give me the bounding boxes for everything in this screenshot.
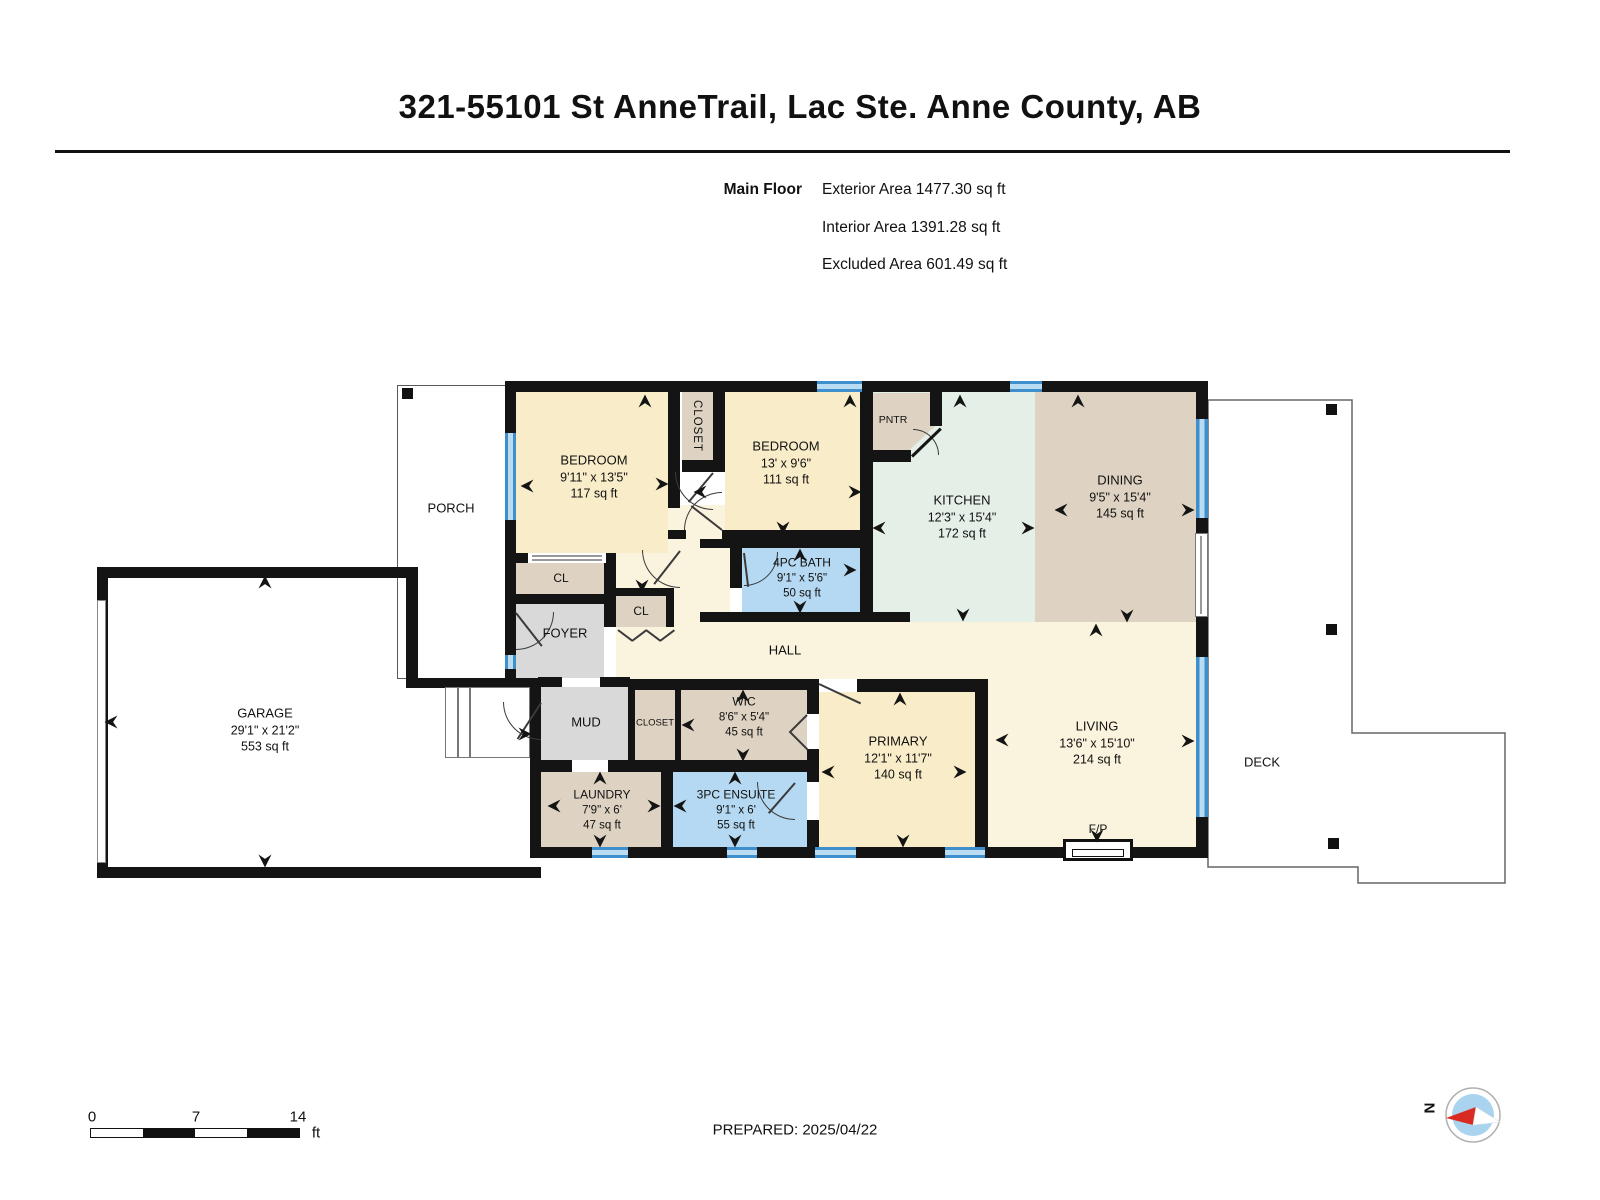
room-label-ensuite: 3PC ENSUITE 9'1" x 6' 55 sq ft <box>697 787 776 832</box>
room-area: 55 sq ft <box>697 818 776 833</box>
window <box>815 847 856 858</box>
scale-unit: ft <box>312 1125 320 1142</box>
room-area: 47 sq ft <box>573 818 630 833</box>
label-foyer: FOYER <box>543 626 588 641</box>
direction-arrow-icon <box>259 855 272 868</box>
garage-door <box>97 600 106 863</box>
label-hall: HALL <box>769 643 802 658</box>
closet-slider-track <box>532 559 602 561</box>
wall-segment <box>600 677 630 687</box>
wall-segment <box>730 538 742 588</box>
scale-start: 0 <box>88 1109 96 1126</box>
compass-icon <box>1438 1081 1508 1151</box>
wall-segment <box>608 760 807 772</box>
room-label-garage: GARAGE 29'1" x 21'2" 553 sq ft <box>231 705 300 754</box>
room-dims: 12'1" x 11'7" <box>864 750 932 766</box>
wall-segment <box>857 679 988 692</box>
room-area: 214 sq ft <box>1059 751 1135 767</box>
wall-segment <box>406 567 418 688</box>
room-area: 117 sq ft <box>560 485 628 501</box>
room-label-bedroom1: BEDROOM 9'11" x 13'5" 117 sq ft <box>560 452 628 501</box>
label-porch: PORCH <box>428 501 475 516</box>
label-cl-hall: CL <box>633 604 648 618</box>
post-marker <box>402 388 413 399</box>
scale-mid: 7 <box>192 1109 200 1126</box>
room-label-bedroom2: BEDROOM 13' x 9'6" 111 sq ft <box>752 438 819 487</box>
page-title: 321-55101 St AnneTrail, Lac Ste. Anne Co… <box>0 88 1600 126</box>
label-closet-mud: CLOSET <box>636 718 674 729</box>
prepared-date: PREPARED: 2025/04/22 <box>713 1122 878 1139</box>
room-label-laundry: LAUNDRY 7'9" x 6' 47 sq ft <box>573 787 630 832</box>
label-closet-vertical: CLOSET <box>691 400 703 452</box>
room-area: 140 sq ft <box>864 766 932 782</box>
room-dims: 8'6" x 5'4" <box>719 710 769 725</box>
wall-segment <box>675 680 681 765</box>
window <box>505 433 516 520</box>
wall-segment <box>873 450 911 462</box>
wall-segment <box>628 679 819 690</box>
room-name: WIC <box>719 694 769 710</box>
room-name: GARAGE <box>231 705 300 722</box>
scale-bar <box>90 1128 300 1138</box>
wall-segment <box>505 594 616 604</box>
wall-segment <box>975 679 988 858</box>
window <box>1196 657 1208 817</box>
title-rule <box>55 150 1510 153</box>
room-dims: 9'5" x 15'4" <box>1089 489 1151 505</box>
room-label-kitchen: KITCHEN 12'3" x 15'4" 172 sq ft <box>928 492 997 541</box>
stair-tread <box>457 687 459 758</box>
deck-outline <box>1200 394 1512 892</box>
room-area: 172 sq ft <box>928 525 997 541</box>
wall-segment <box>505 381 516 688</box>
wall-segment <box>713 381 725 472</box>
wall-segment <box>860 381 873 538</box>
wall-segment <box>668 530 686 539</box>
wall-segment <box>666 588 674 627</box>
fireplace-hearth <box>1072 849 1124 857</box>
room-area: 111 sq ft <box>752 471 819 487</box>
room-dims: 13'6" x 15'10" <box>1059 735 1135 751</box>
wall-segment <box>97 867 541 878</box>
wall-segment <box>700 539 873 548</box>
label-fireplace: F/P <box>1089 822 1108 836</box>
stair-tread <box>469 687 471 758</box>
wall-segment <box>682 460 725 472</box>
sliding-door-track <box>1200 536 1202 614</box>
wall-segment <box>700 612 910 622</box>
wall-segment <box>807 760 819 782</box>
room-label-living: LIVING 13'6" x 15'10" 214 sq ft <box>1059 718 1135 767</box>
wall-segment <box>616 588 672 596</box>
room-name: BEDROOM <box>752 438 819 455</box>
room-dims: 7'9" x 6' <box>573 803 630 818</box>
window <box>592 847 628 858</box>
label-pantry: PNTR <box>879 414 908 426</box>
room-area: 45 sq ft <box>719 725 769 740</box>
room-dims: 13' x 9'6" <box>752 455 819 471</box>
wall-segment <box>97 567 418 578</box>
wall-segment <box>722 530 873 539</box>
room-area: 50 sq ft <box>773 586 831 601</box>
post-marker <box>1326 404 1337 415</box>
wall-segment <box>860 538 873 622</box>
label-deck: DECK <box>1244 755 1280 770</box>
room-name: 3PC ENSUITE <box>697 787 776 803</box>
room-dims: 9'1" x 5'6" <box>773 571 831 586</box>
window <box>1196 419 1208 518</box>
post-marker <box>1326 624 1337 635</box>
room-dims: 29'1" x 21'2" <box>231 722 300 738</box>
excluded-area: Excluded Area 601.49 sq ft <box>822 256 1007 274</box>
room-name: 4PC BATH <box>773 555 831 571</box>
interior-area: Interior Area 1391.28 sq ft <box>822 219 1000 237</box>
room-label-wic: WIC 8'6" x 5'4" 45 sq ft <box>719 694 769 739</box>
room-name: LAUNDRY <box>573 787 630 803</box>
compass-north-label: N <box>1421 1103 1438 1114</box>
room-label-primary: PRIMARY 12'1" x 11'7" 140 sq ft <box>864 733 932 782</box>
room-area: 553 sq ft <box>231 738 300 754</box>
window <box>505 655 516 669</box>
room-name: BEDROOM <box>560 452 628 469</box>
room-area: 145 sq ft <box>1089 505 1151 521</box>
room-label-bath: 4PC BATH 9'1" x 5'6" 50 sq ft <box>773 555 831 600</box>
wall-segment <box>628 680 635 765</box>
post-marker <box>1328 838 1339 849</box>
room-name: LIVING <box>1059 718 1135 735</box>
room-name: DINING <box>1089 472 1151 489</box>
wall-segment <box>807 679 819 714</box>
room-dims: 9'1" x 6' <box>697 803 776 818</box>
window <box>817 381 862 392</box>
wall-segment <box>538 677 562 687</box>
room-name: PRIMARY <box>864 733 932 750</box>
closet-slider-track <box>532 555 602 557</box>
window <box>1010 381 1042 392</box>
window <box>945 847 985 858</box>
floor-label: Main Floor <box>600 181 802 199</box>
label-mud: MUD <box>571 715 601 730</box>
room-dims: 12'3" x 15'4" <box>928 509 997 525</box>
wall-segment <box>538 760 572 772</box>
room-name: KITCHEN <box>928 492 997 509</box>
exterior-area: Exterior Area 1477.30 sq ft <box>822 181 1006 199</box>
scale-end: 14 <box>290 1109 307 1126</box>
label-cl-bedroom: CL <box>553 571 568 585</box>
wall-segment <box>930 392 942 426</box>
room-label-dining: DINING 9'5" x 15'4" 145 sq ft <box>1089 472 1151 521</box>
wall-segment <box>661 760 673 858</box>
wall-segment <box>604 553 616 627</box>
floorplan-page: 321-55101 St AnneTrail, Lac Ste. Anne Co… <box>0 0 1600 1200</box>
window <box>727 847 757 858</box>
room-dims: 9'11" x 13'5" <box>560 469 628 485</box>
